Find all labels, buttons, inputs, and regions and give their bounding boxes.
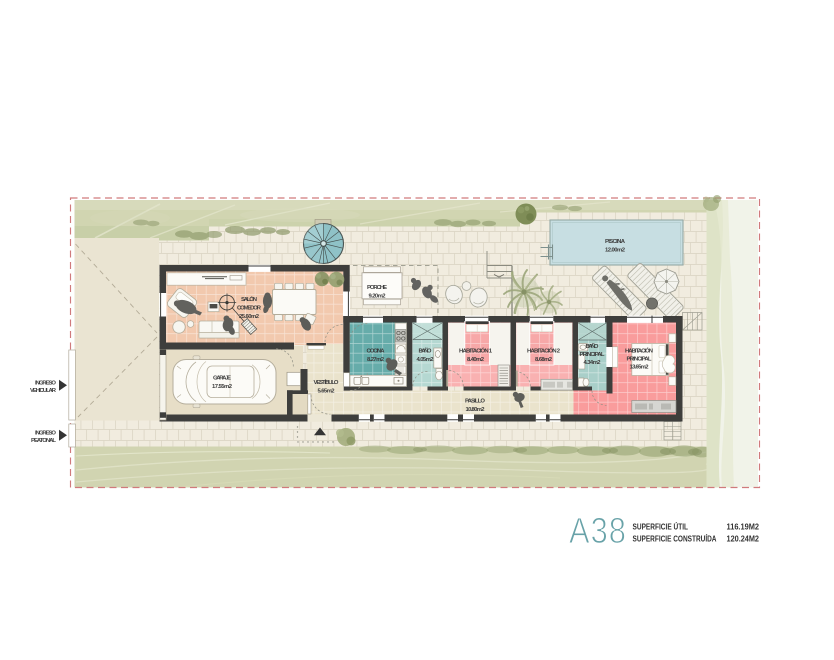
svg-text:4.05m2: 4.05m2 xyxy=(417,357,435,363)
svg-text:GARAJE: GARAJE xyxy=(213,376,231,382)
svg-text:8.40m2: 8.40m2 xyxy=(467,357,485,363)
svg-text:PEATONAL: PEATONAL xyxy=(31,438,56,444)
svg-text:12.00m2: 12.00m2 xyxy=(605,248,626,254)
svg-text:BAÑO: BAÑO xyxy=(419,348,432,355)
svg-text:VESTÍBULO: VESTÍBULO xyxy=(314,378,339,386)
svg-text:INGRESO: INGRESO xyxy=(35,431,56,437)
svg-text:PRINCIPAL: PRINCIPAL xyxy=(580,352,605,358)
svg-text:8.27m2: 8.27m2 xyxy=(367,357,385,363)
svg-text:BAÑO: BAÑO xyxy=(586,343,599,350)
svg-text:PRINCIPAL: PRINCIPAL xyxy=(627,357,652,363)
svg-text:PISCINA: PISCINA xyxy=(605,239,626,245)
svg-text:HABITACIÓN: HABITACIÓN xyxy=(625,347,653,355)
svg-text:HABITACIÓN 2: HABITACIÓN 2 xyxy=(527,347,561,355)
svg-text:5.65m2: 5.65m2 xyxy=(318,389,336,395)
svg-text:SUPERFICIE ÚTIL: SUPERFICIE ÚTIL xyxy=(633,521,689,532)
svg-text:INGRESO: INGRESO xyxy=(35,381,56,387)
svg-text:120.24M2: 120.24M2 xyxy=(727,534,760,544)
svg-text:17.55m2: 17.55m2 xyxy=(212,384,233,390)
svg-text:8.68m2: 8.68m2 xyxy=(535,357,553,363)
svg-text:116.19M2: 116.19M2 xyxy=(727,522,760,532)
svg-text:PASILLO: PASILLO xyxy=(465,399,485,405)
svg-text:SALÓN: SALÓN xyxy=(241,295,257,303)
svg-text:HABITACIÓN 1: HABITACIÓN 1 xyxy=(459,347,493,355)
svg-text:9.20m2: 9.20m2 xyxy=(369,294,387,300)
svg-text:A38: A38 xyxy=(569,510,627,551)
svg-text:4.34m2: 4.34m2 xyxy=(584,360,602,366)
svg-text:COMEDOR: COMEDOR xyxy=(237,306,262,312)
svg-text:PORCHE: PORCHE xyxy=(367,285,387,291)
svg-text:25.60m2: 25.60m2 xyxy=(239,314,260,320)
svg-text:VEHICULAR: VEHICULAR xyxy=(30,388,57,394)
svg-text:13.65m2: 13.65m2 xyxy=(630,365,650,371)
svg-text:COCINA: COCINA xyxy=(367,349,386,355)
svg-text:10.80m2: 10.80m2 xyxy=(466,407,486,413)
svg-text:SUPERFICIE CONSTRUÍDA: SUPERFICIE CONSTRUÍDA xyxy=(633,533,717,544)
